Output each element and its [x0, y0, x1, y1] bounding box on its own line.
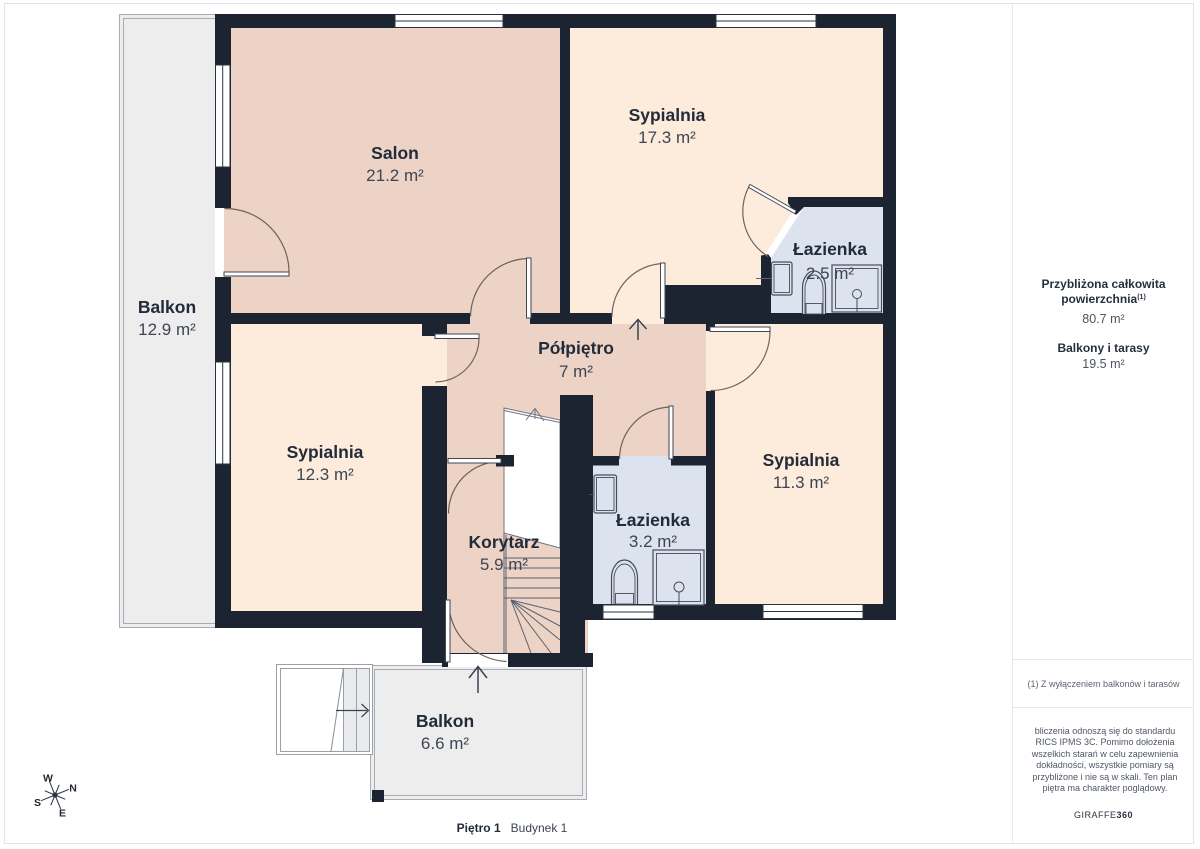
svg-text:W: W	[43, 773, 53, 785]
svg-text:6.6 m²: 6.6 m²	[421, 734, 470, 753]
svg-text:Sypialnia: Sypialnia	[287, 442, 364, 462]
svg-text:12.9 m²: 12.9 m²	[138, 320, 196, 339]
svg-text:2.5 m²: 2.5 m²	[806, 264, 855, 283]
svg-text:E: E	[59, 808, 66, 820]
svg-text:Łazienka: Łazienka	[616, 510, 690, 530]
svg-text:21.2 m²: 21.2 m²	[366, 166, 424, 185]
svg-text:Sypialnia: Sypialnia	[763, 450, 840, 470]
svg-text:Salon: Salon	[371, 143, 419, 163]
svg-text:Łazienka: Łazienka	[793, 239, 867, 259]
svg-text:3.2 m²: 3.2 m²	[629, 532, 678, 551]
svg-text:Korytarz: Korytarz	[469, 532, 540, 552]
svg-text:11.3 m²: 11.3 m²	[773, 473, 830, 492]
svg-text:Półpiętro: Półpiętro	[538, 338, 614, 358]
svg-text:N: N	[69, 783, 77, 795]
svg-text:12.3 m²: 12.3 m²	[296, 465, 354, 484]
svg-text:Balkon: Balkon	[138, 297, 196, 317]
svg-text:S: S	[34, 797, 41, 809]
svg-text:Sypialnia: Sypialnia	[629, 105, 706, 125]
svg-text:Balkon: Balkon	[416, 711, 474, 731]
svg-text:5.9 m²: 5.9 m²	[480, 555, 529, 574]
svg-text:17.3 m²: 17.3 m²	[638, 128, 696, 147]
svg-text:7 m²: 7 m²	[559, 362, 593, 381]
